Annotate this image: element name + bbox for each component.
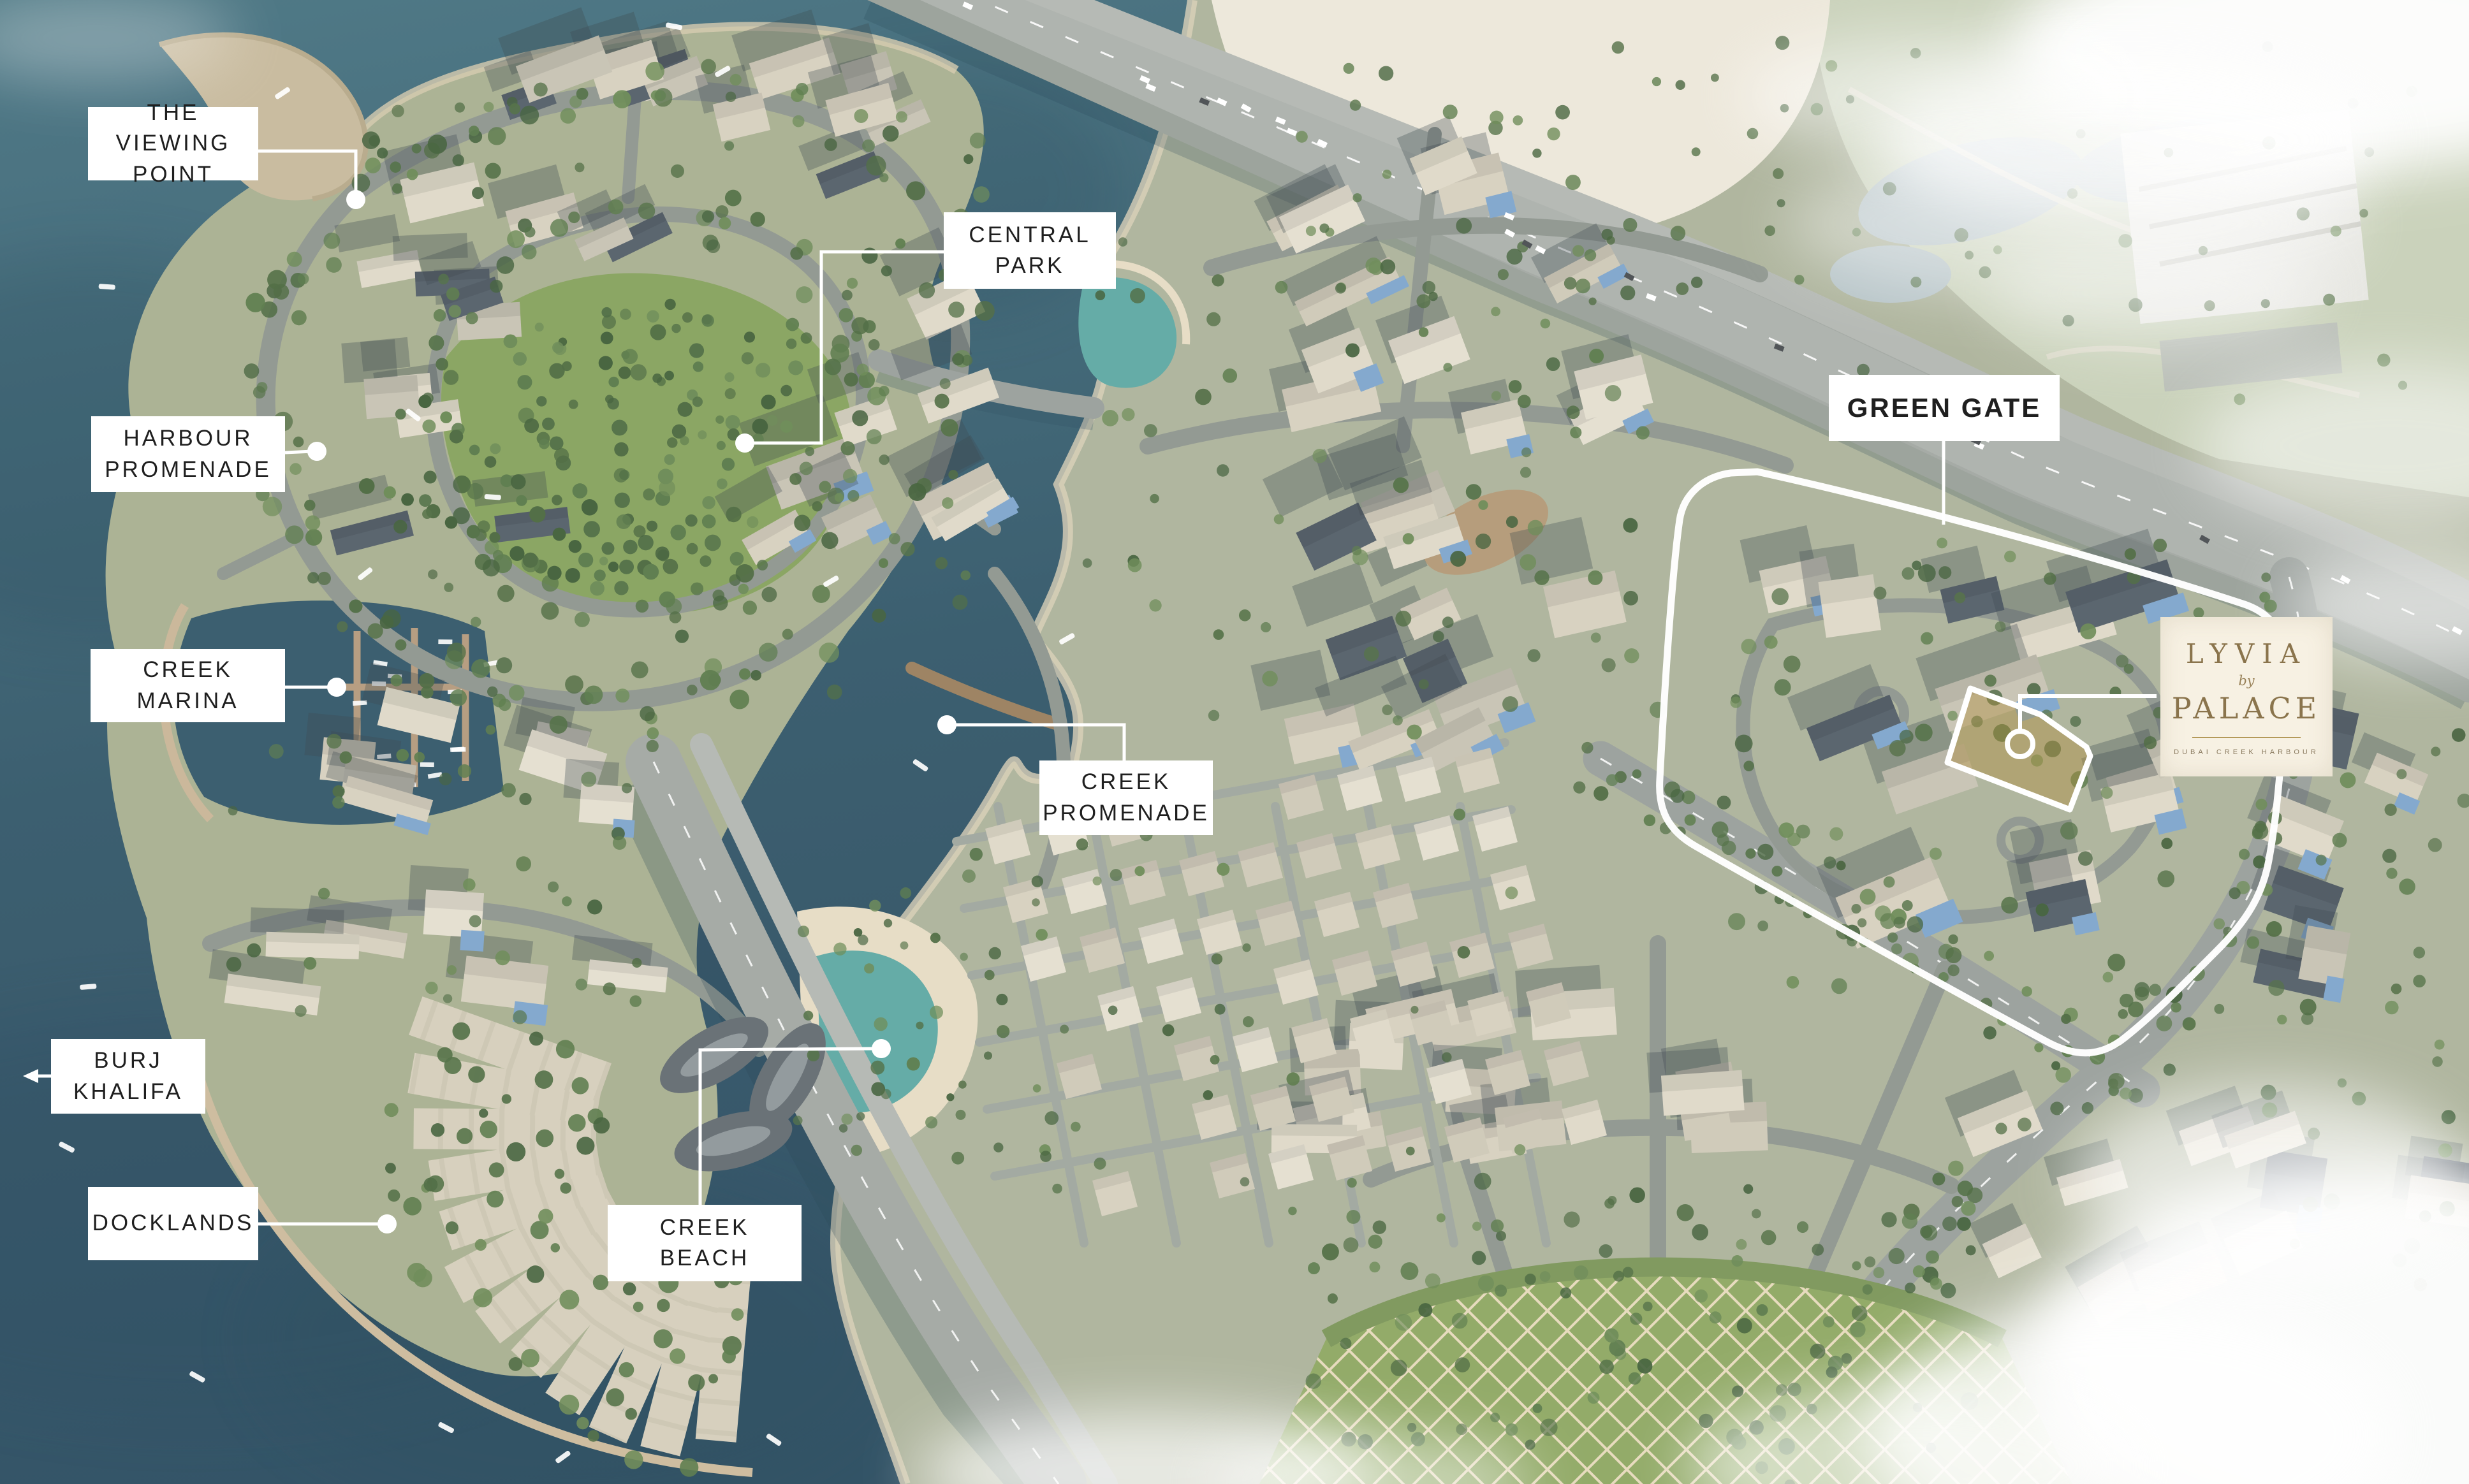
map-label-text: PROMENADE [105,455,272,485]
leader-dot-harbour-promenade [307,442,326,461]
map-label-text: CREEK [143,655,233,685]
logo-brand-bottom: PALACE [2172,691,2322,725]
map-label-harbour-promenade: HARBOURPROMENADE [91,416,285,492]
map-annotation-layer [0,0,2469,1484]
map-label-text: KHALIFA [73,1077,183,1107]
map-label-viewing-point: THE VIEWINGPOINT [88,107,258,180]
west-arrow-icon [23,1069,38,1083]
leader-dot-central-park [735,433,754,453]
leader-dot-creek-promenade [937,715,956,734]
map-label-creek-marina: CREEKMARINA [91,649,285,722]
logo-tagline: DUBAI CREEK HARBOUR [2174,748,2319,756]
map-label-text: BURJ [94,1045,162,1076]
map-label-green-gate: GREEN GATE [1829,375,2060,441]
map-label-text: CREEK [1081,767,1171,797]
map-label-text: DOCKLANDS [92,1208,254,1239]
map-label-text: PROMENADE [1043,798,1210,829]
leader-dot-viewing-point [346,190,365,209]
leader-dot-creek-beach [872,1039,891,1058]
map-label-text: CREEK [660,1212,750,1243]
logo-divider [2192,737,2301,738]
masterplan-map: LYVIA by PALACE DUBAI CREEK HARBOUR THE … [0,0,2469,1484]
lyvia-palace-logo-card: LYVIA by PALACE DUBAI CREEK HARBOUR [2160,617,2333,776]
map-label-docklands: DOCKLANDS [88,1187,258,1260]
map-label-burj-khalifa: BURJKHALIFA [51,1039,205,1114]
leader-line-creek-promenade [954,725,1124,760]
leader-line-creek-beach [700,1049,874,1205]
map-label-text: MARINA [136,686,238,717]
map-label-text: CENTRAL [969,220,1090,251]
map-label-text: GREEN GATE [1847,389,2042,426]
leader-dot-docklands [377,1214,397,1233]
map-label-creek-promenade: CREEKPROMENADE [1039,760,1213,835]
logo-brand-top: LYVIA [2186,638,2307,669]
map-label-text: BEACH [660,1243,750,1274]
leader-dot-creek-marina [327,678,346,697]
logo-brand-connector: by [2238,673,2254,688]
map-label-creek-beach: CREEKBEACH [608,1205,802,1281]
leader-line-viewing-point [258,151,356,200]
map-label-text: POINT [133,159,214,190]
map-label-text: PARK [995,251,1065,281]
map-label-text: THE VIEWING [88,98,258,159]
map-label-text: HARBOUR [123,423,253,454]
leader-line-central-park [752,252,944,443]
map-label-central-park: CENTRALPARK [944,212,1116,289]
